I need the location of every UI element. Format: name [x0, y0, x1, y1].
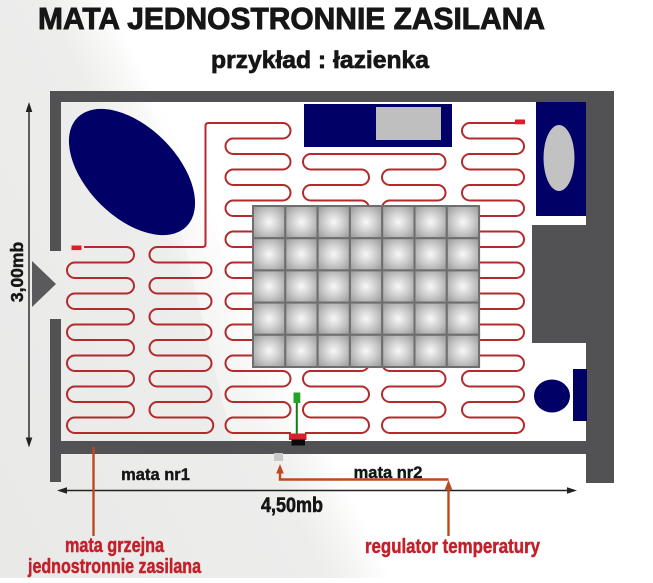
svg-text:mata grzejna: mata grzejna: [65, 535, 165, 557]
svg-text:4,50mb: 4,50mb: [261, 494, 323, 517]
svg-text:regulator temperatury: regulator temperatury: [365, 536, 541, 558]
svg-text:mata nr1: mata nr1: [121, 466, 190, 484]
svg-text:3,00mb: 3,00mb: [7, 242, 27, 302]
svg-text:jednostronnie zasilana: jednostronnie zasilana: [27, 556, 202, 578]
svg-text:przykład : łazienka: przykład : łazienka: [211, 47, 430, 74]
svg-text:MATA JEDNOSTRONNIE ZASILANA: MATA JEDNOSTRONNIE ZASILANA: [38, 2, 545, 36]
